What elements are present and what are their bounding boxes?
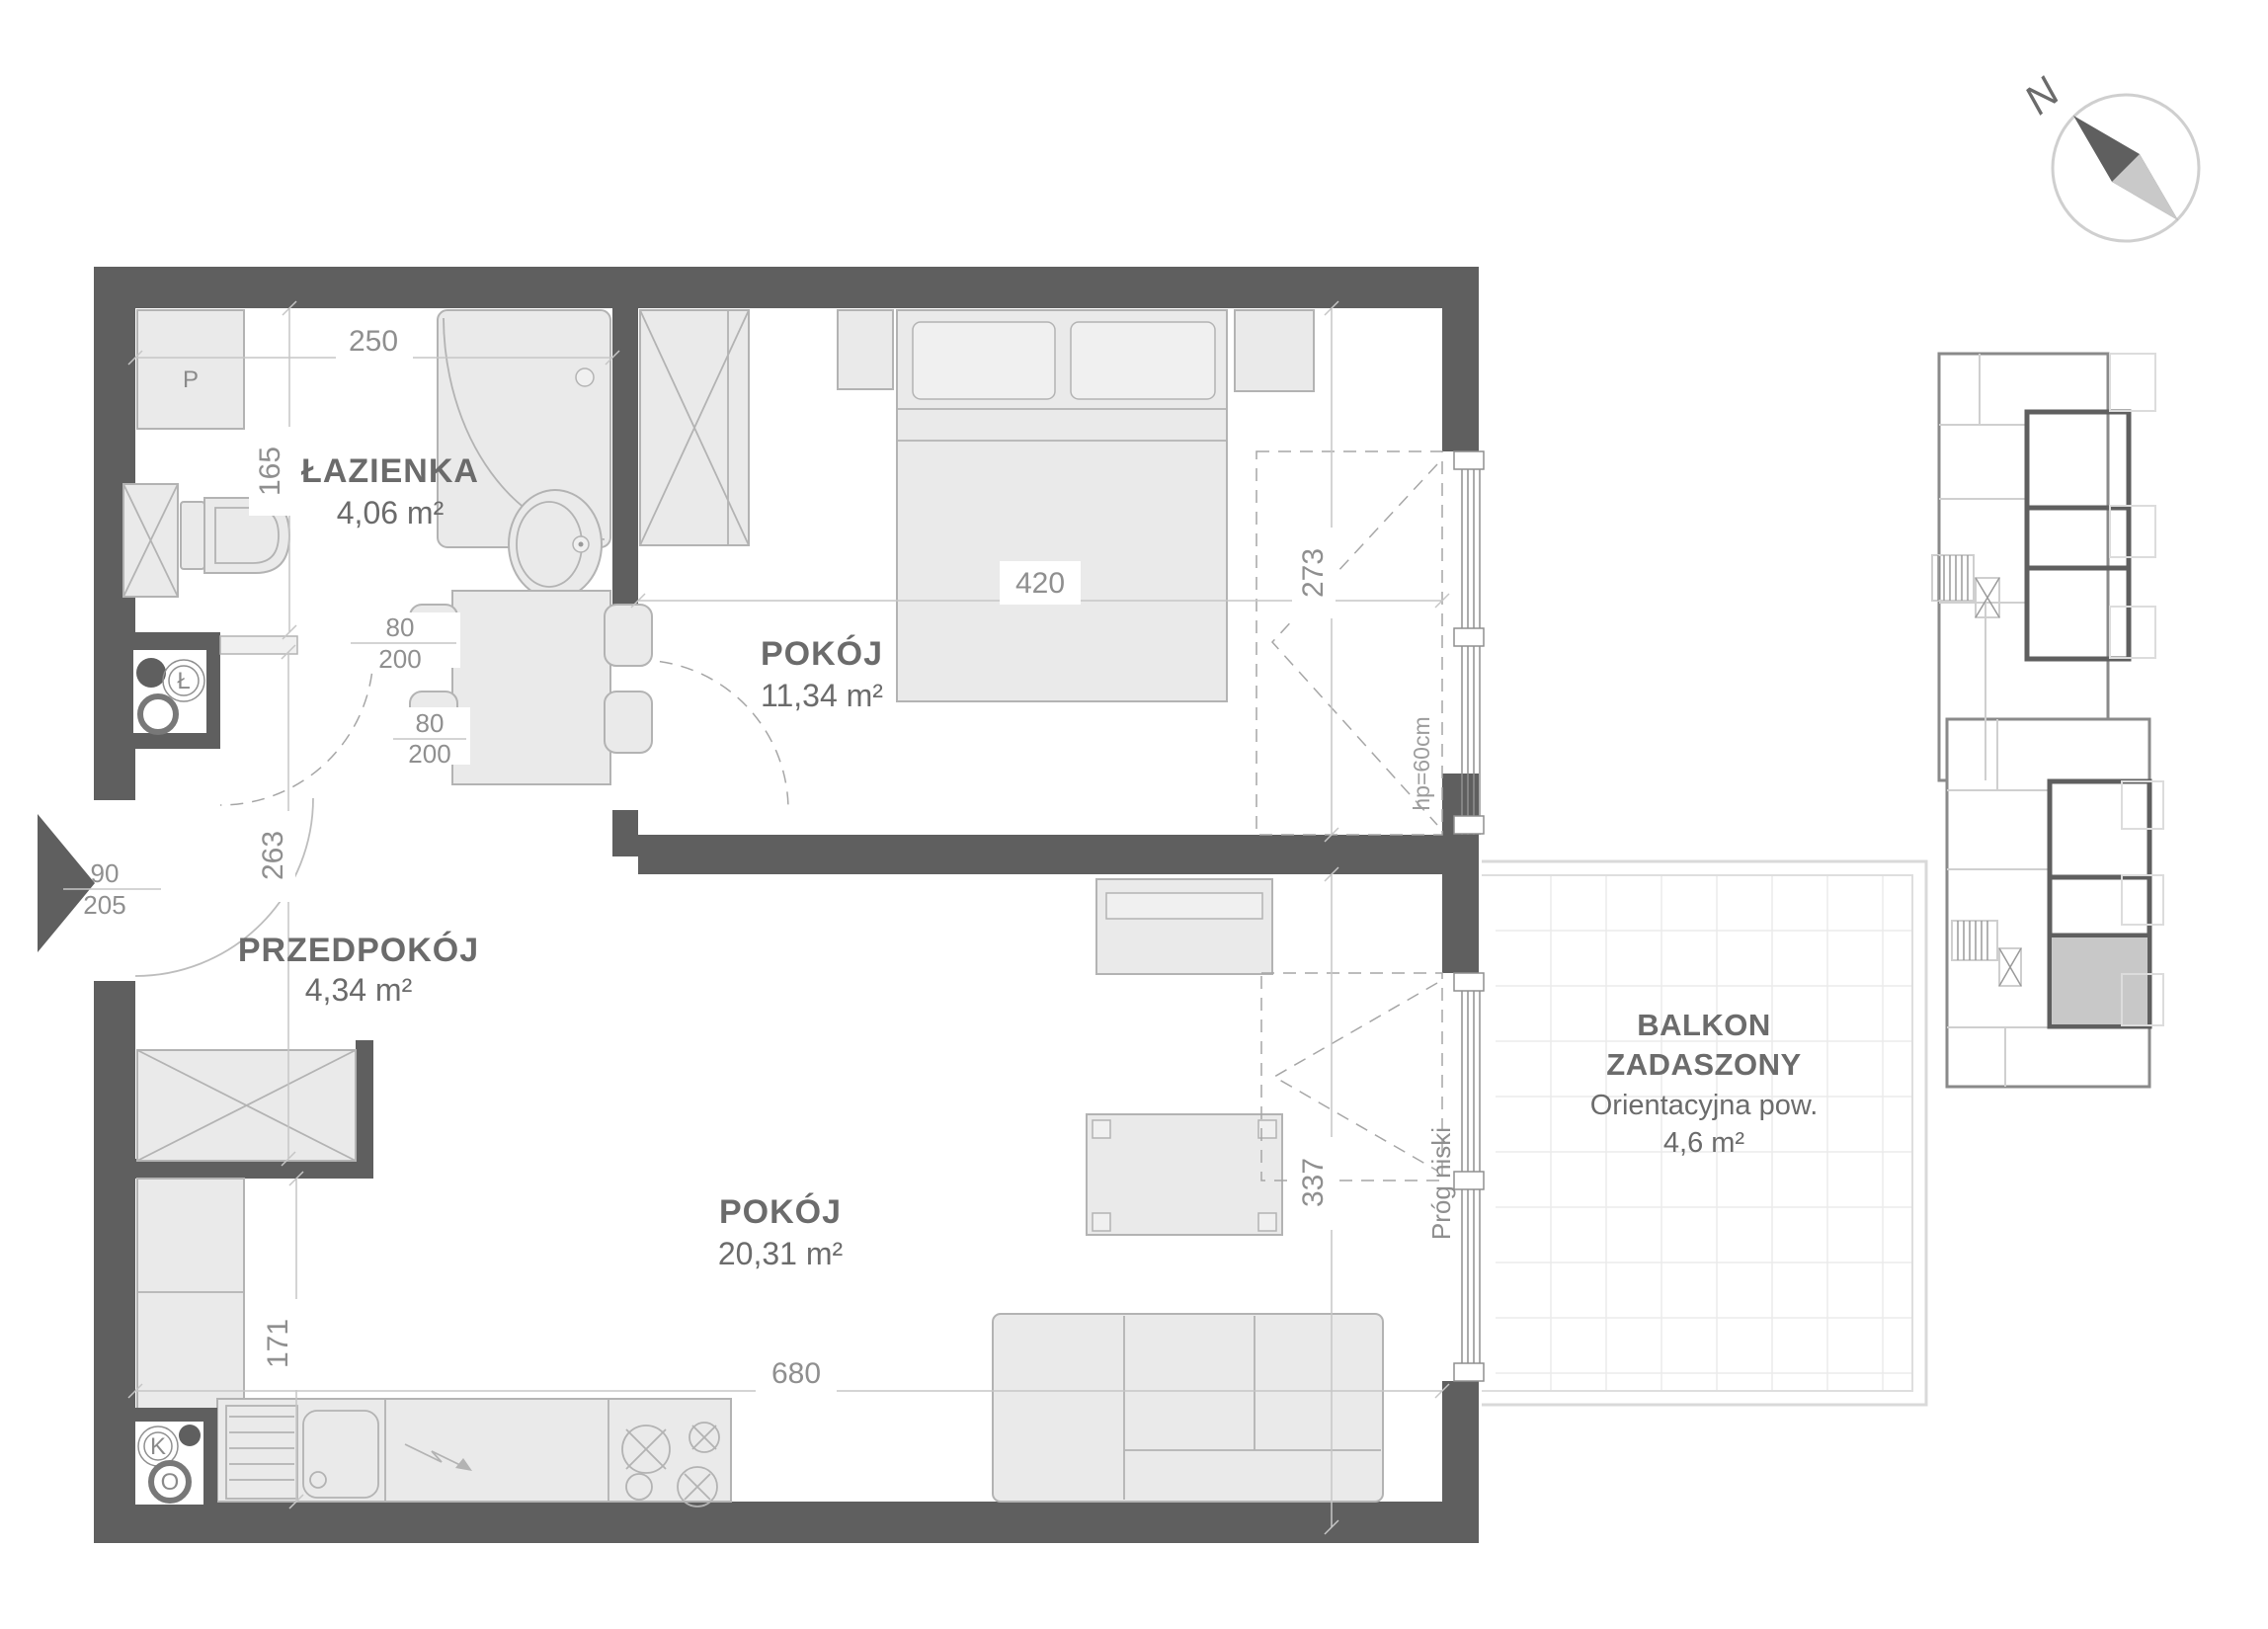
shaft-extract-symbol: O: [161, 1469, 180, 1496]
bed-pillow-right: [1071, 322, 1215, 399]
coffee-table-leg-3: [1093, 1213, 1110, 1231]
door-entry-width: 90: [91, 858, 120, 888]
wall-right-bottom: [1442, 1381, 1479, 1543]
living-glazing-cap-mid: [1454, 1172, 1484, 1189]
chair-top-right: [605, 605, 652, 666]
bedroom-area: 11,34 m²: [761, 678, 883, 713]
bathroom-door-swing: [220, 652, 373, 805]
balcony-title-line1: BALKON: [1637, 1008, 1771, 1042]
dim-bedroom-width: 420: [1015, 567, 1065, 600]
bathroom-door-leaf: [220, 636, 297, 654]
bathroom-area: 4,06 m²: [337, 495, 445, 530]
chair-bottom-right: [605, 692, 652, 753]
compass-north-label: N: [2015, 68, 2068, 123]
nightstand-left: [838, 310, 893, 389]
living-name: POKÓJ: [719, 1193, 842, 1231]
door-bathroom-width: 80: [386, 612, 415, 642]
door-size-bedroom: 80 200: [391, 707, 470, 769]
kitchen-counter-bottom: [217, 1399, 731, 1502]
dim-kitchen-depth: 171: [262, 1319, 294, 1368]
window-sill-note: hp=60cm: [1409, 716, 1434, 810]
bedroom-glazing-cap-top: [1454, 451, 1484, 469]
balcony-area: 4,6 m²: [1663, 1127, 1745, 1159]
living-glazing-cap-bottom: [1454, 1363, 1484, 1381]
wall-bedroom-living: [638, 835, 1442, 874]
bedroom-name: POKÓJ: [761, 635, 883, 673]
shaft-kitchen-filled: [179, 1425, 201, 1446]
door-size-bathroom: 80 200: [348, 612, 460, 674]
wall-bedroom-door-stub: [612, 810, 638, 856]
dim-bathroom-depth: 165: [254, 447, 286, 496]
nightstand-right: [1235, 310, 1314, 391]
dining-table: [452, 591, 610, 784]
coffee-table-leg-4: [1258, 1213, 1276, 1231]
wall-niche-right: [356, 1040, 373, 1179]
shaft-bathroom-symbol: Ł: [177, 668, 190, 694]
living-area: 20,31 m²: [718, 1236, 844, 1271]
coffee-table: [1087, 1114, 1282, 1235]
bedroom-glazing-cap-mid: [1454, 628, 1484, 646]
wall-top: [94, 267, 1479, 308]
dim-bedroom-depth: 273: [1297, 548, 1330, 598]
shaft-pipe-filled: [136, 658, 166, 688]
coffee-table-leg-1: [1093, 1120, 1110, 1138]
keyplan-highlighted-apartment: [2052, 937, 2147, 1024]
bedroom-glazing-cap-bottom: [1454, 816, 1484, 834]
balcony-note: Orientacyjna pow.: [1590, 1090, 1819, 1121]
bed-pillow-left: [913, 322, 1055, 399]
threshold-note: Próg niski: [1426, 1127, 1456, 1240]
toilet-cistern: [181, 502, 204, 569]
bathtub-faucet: [576, 368, 594, 386]
wall-right-top: [1442, 267, 1479, 451]
door-bedroom-height: 200: [408, 739, 450, 769]
sink-drain: [579, 542, 584, 547]
balcony: BALKON ZADASZONY Orientacyjna pow. 4,6 m…: [1482, 861, 1926, 1405]
dim-hall-length: 263: [257, 831, 289, 880]
hall-area: 4,34 m²: [305, 972, 413, 1008]
wall-bottom: [94, 1502, 1479, 1543]
wall-bathroom-right: [612, 308, 638, 654]
entrance-arrow-icon: [38, 814, 95, 952]
door-bathroom-height: 200: [378, 644, 421, 674]
dim-living-width: 680: [771, 1357, 821, 1390]
bathroom-name: ŁAZIENKA: [301, 452, 479, 490]
floor-plan-canvas: P Ł: [0, 0, 2268, 1629]
dim-bathroom-width: 250: [349, 325, 398, 358]
balcony-title-line2: ZADASZONY: [1606, 1047, 1801, 1082]
north-compass: N: [2015, 68, 2199, 241]
washing-machine-symbol: P: [183, 367, 199, 393]
living-glazing-cap-top: [1454, 973, 1484, 991]
key-plan: [1932, 354, 2163, 1087]
door-bedroom-width: 80: [416, 708, 445, 738]
kitchen-counter-left: [137, 1179, 244, 1416]
shaft-kitchen-symbol: K: [150, 1433, 166, 1460]
door-entry-height: 205: [83, 890, 125, 920]
dim-living-depth: 337: [1297, 1158, 1330, 1207]
tv-set: [1106, 893, 1262, 919]
hall-name: PRZEDPOKÓJ: [238, 932, 479, 969]
sofa: [993, 1314, 1383, 1502]
living-balcony-door-zone: [1261, 973, 1442, 1181]
